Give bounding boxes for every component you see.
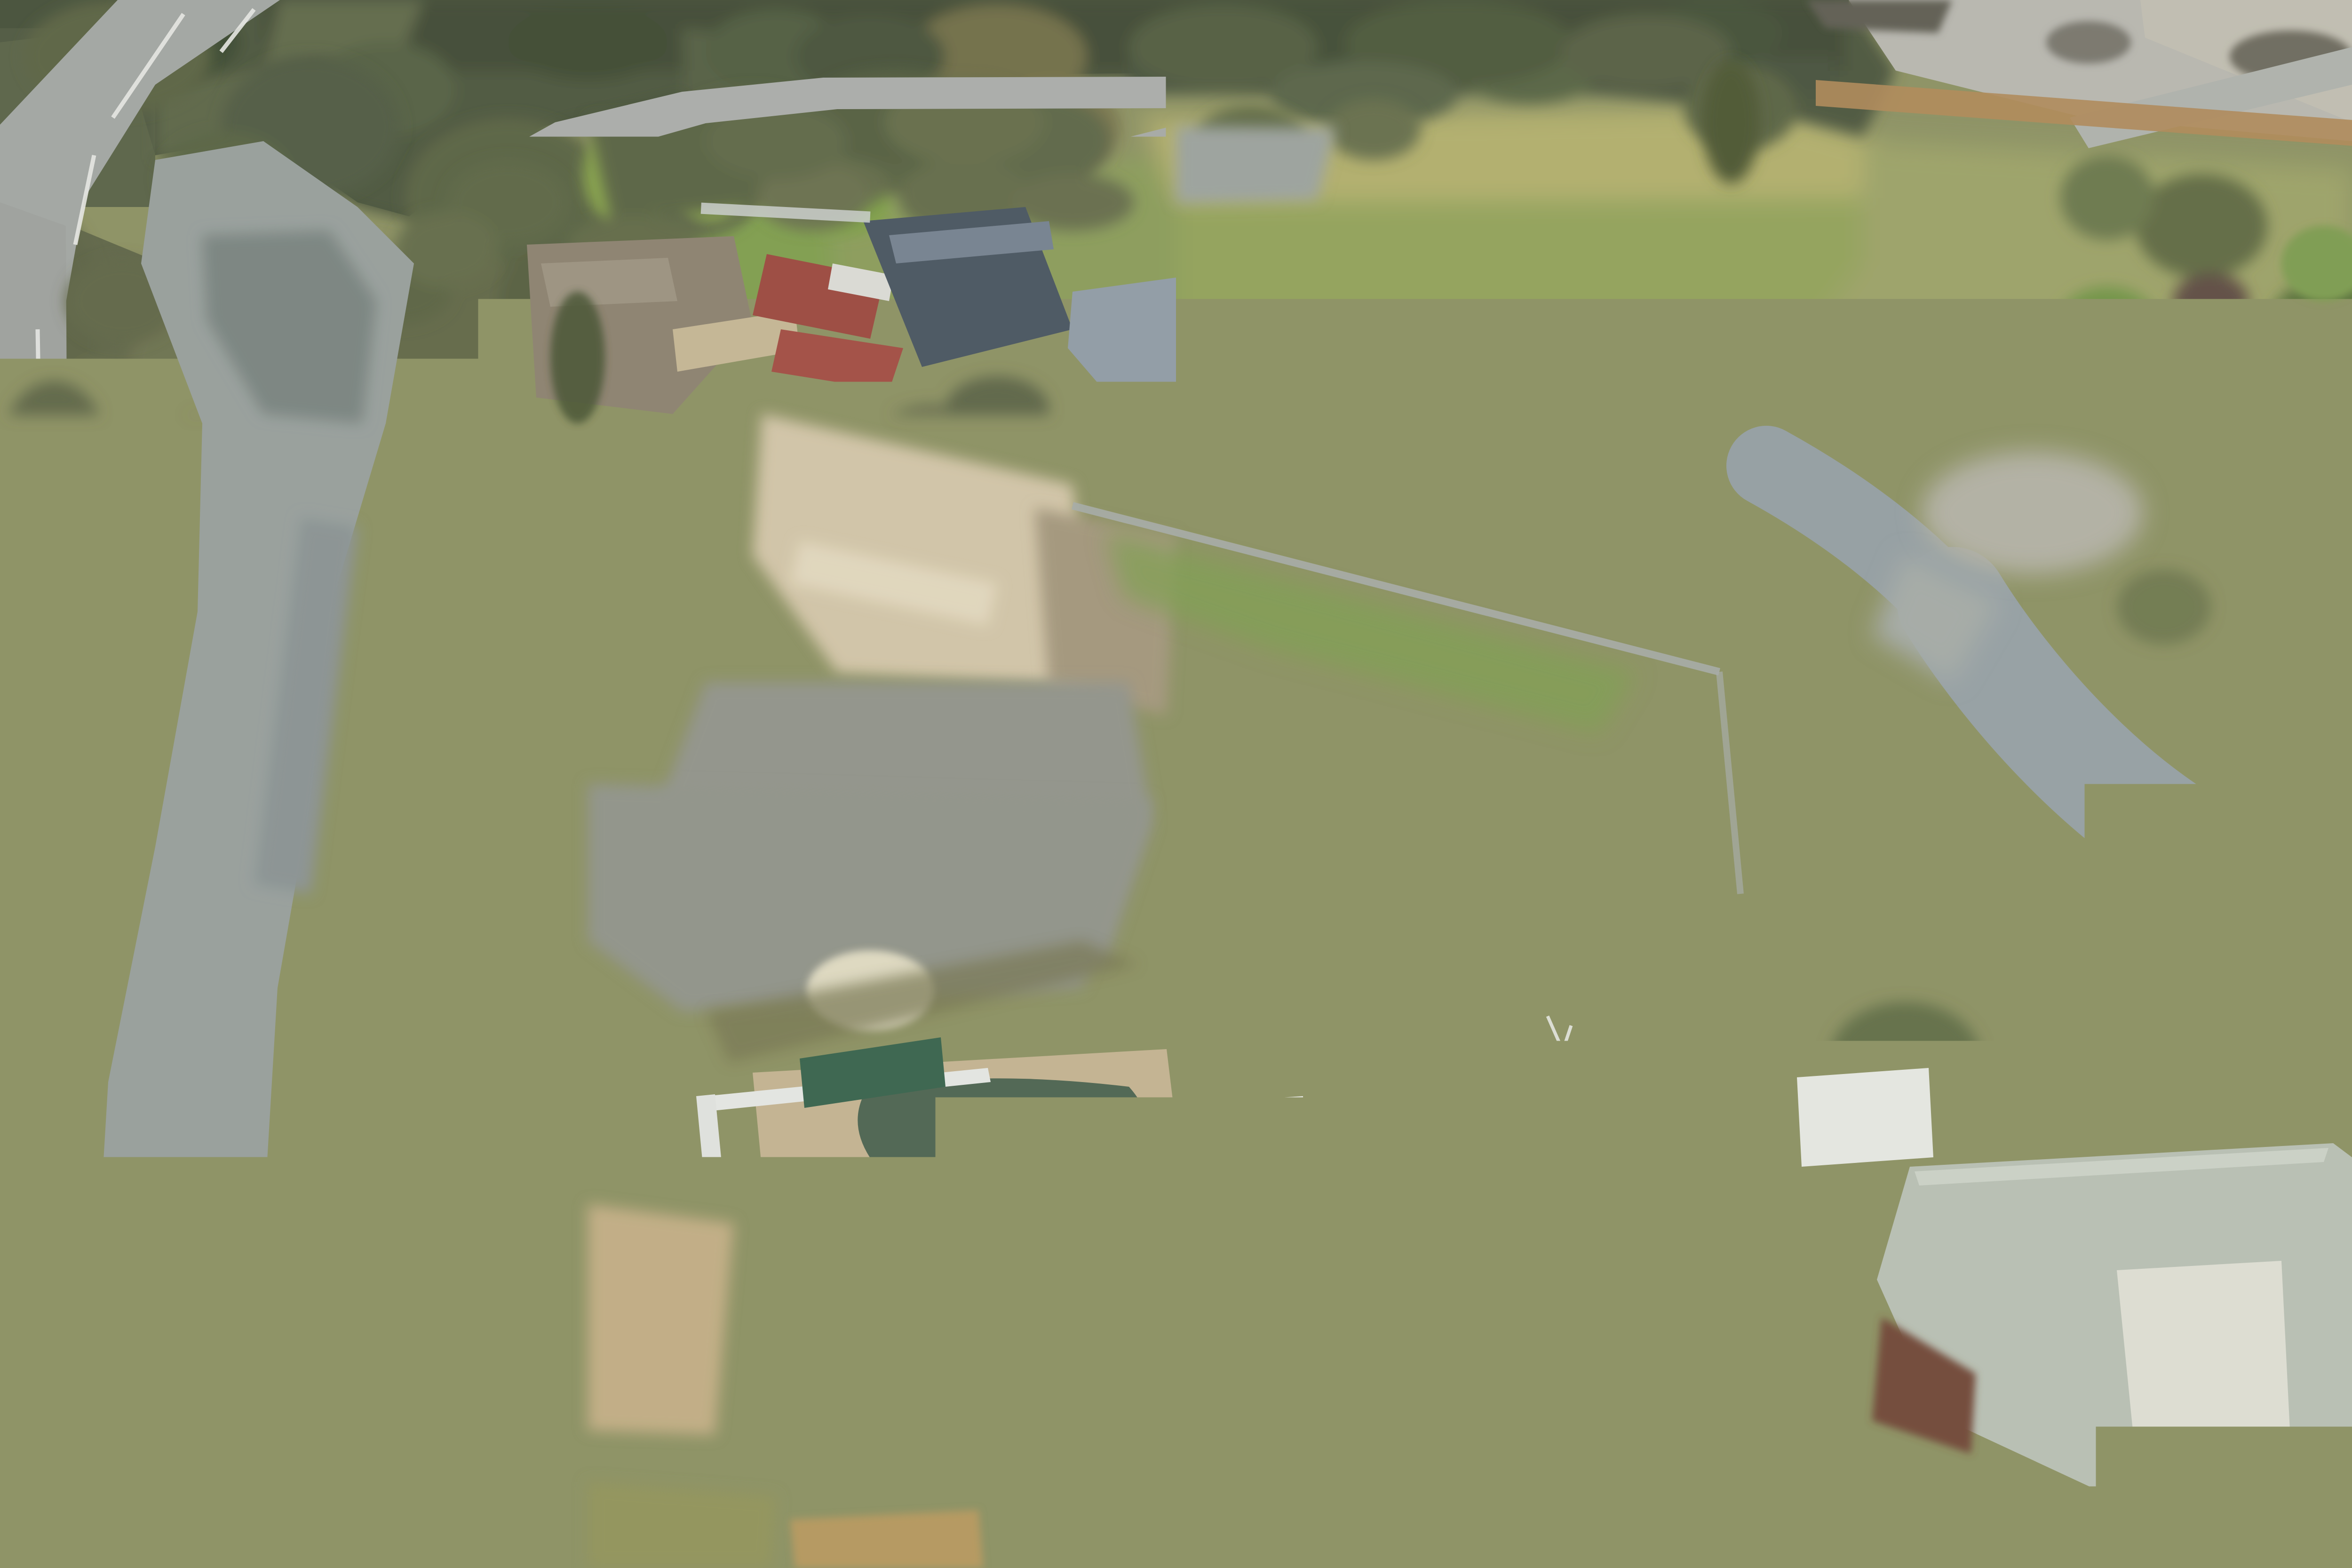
svg-text:DISCLAIMER: Boundaries on phot: DISCLAIMER: Boundaries on photos are ind… [417, 1493, 1939, 1540]
